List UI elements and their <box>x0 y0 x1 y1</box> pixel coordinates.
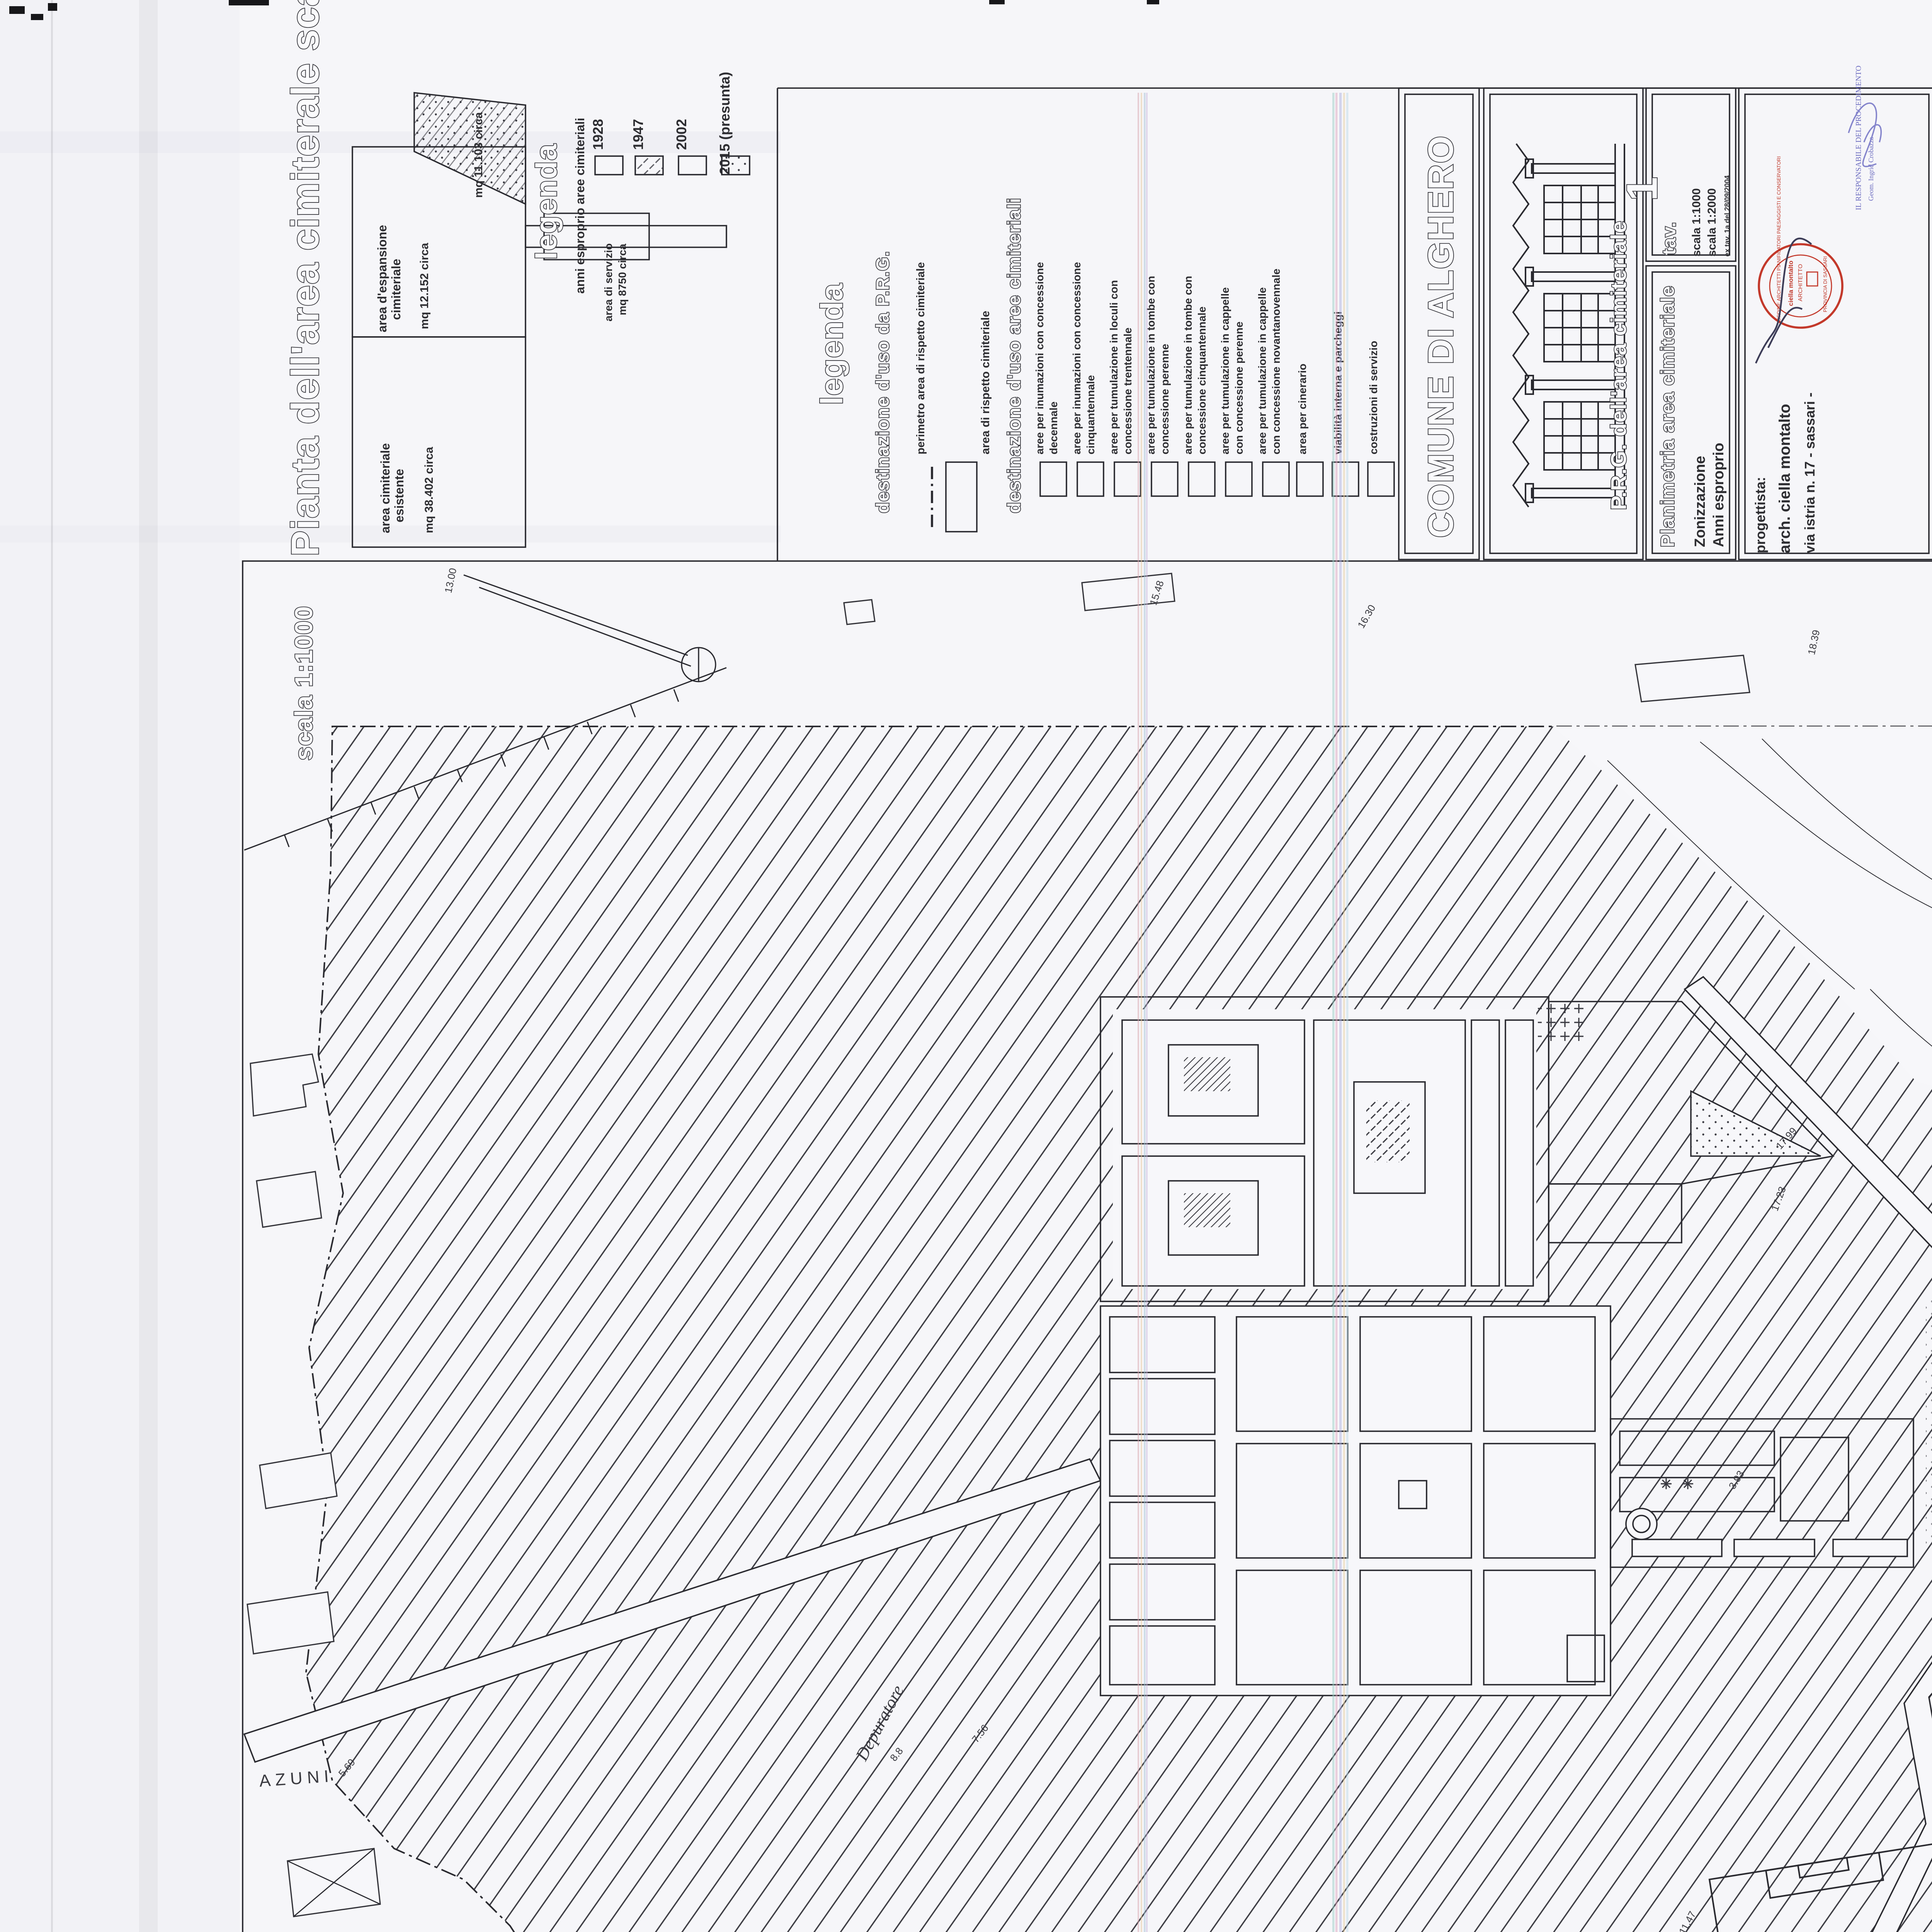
svg-text:1947: 1947 <box>630 119 646 150</box>
subject: Planimetria area cimiteriale <box>1658 285 1678 547</box>
seal-title: ARCHITETTO <box>1797 264 1804 301</box>
inset-espansione-mq: mq 12.152 circa <box>418 243 431 329</box>
legend-header-prg: destinazione d'uso da P.R.G. <box>872 250 893 513</box>
cinerario-area <box>1538 1002 1584 1042</box>
tav-label: tav. <box>1659 221 1680 255</box>
progettista-label: progettista: <box>1752 477 1768 553</box>
seal-ring-text: ORDINE ARCHITETTI PIANIFICATORI PAESAGGI… <box>1776 156 1782 321</box>
inset-espansione2-mq: mq 11.103 circa <box>472 112 485 198</box>
svg-text:costruzioni di servizio: costruzioni di servizio <box>1367 341 1379 454</box>
inset-servizio-mq: mq 8750 circa <box>616 243 628 315</box>
legend-years-subtitle: anni esproprio aree cimiteriali <box>573 118 587 294</box>
svg-text:concessione trentennale: concessione trentennale <box>1122 328 1134 454</box>
svg-text:decennale: decennale <box>1048 401 1060 454</box>
tav-note: ex tav. 1a del 28/09/2004 <box>1723 175 1731 257</box>
scanned-plan-sheet: Pianta dell'area cimiterale scala 1:2000… <box>0 0 1932 1932</box>
svg-text:1928: 1928 <box>590 119 606 150</box>
inset-espansione-label: area d'espansione <box>375 225 389 332</box>
tav-scale-1: scala 1:1000 <box>1690 188 1703 257</box>
map: scala 1:1000 SASSARI VIA VITTORIO EMANUE… <box>243 561 1932 1932</box>
svg-text:aree per inumazioni con conces: aree per inumazioni con concessione <box>1034 262 1046 454</box>
svg-text:area per cinerario: area per cinerario <box>1296 364 1308 454</box>
responsabile-line1: IL RESPONSABILE DEL PROCEDIMENTO <box>1854 66 1863 210</box>
sheet-title: Pianta dell'area cimiterale scala 1:2000 <box>284 0 327 556</box>
svg-text:concessione cinquantennale: concessione cinquantennale <box>1196 306 1208 454</box>
legend-years-title: legenda <box>530 143 563 260</box>
inset-esistente-label: area cimiteriale <box>378 443 392 533</box>
seal-ring-text2: PROVINCIA DI SASSARI <box>1822 256 1828 312</box>
svg-text:con concessione perenne: con concessione perenne <box>1233 321 1245 454</box>
tav-number: 1 <box>1618 176 1666 201</box>
svg-text:con concessione novantanovenna: con concessione novantanovennale <box>1270 269 1282 454</box>
legend-perimetro-label: perimetro area di rispetto cimiteriale <box>915 262 927 454</box>
svg-text:aree per tumulazione in loculi: aree per tumulazione in loculi con <box>1108 280 1120 454</box>
svg-text:aree per tumulazione in cappel: aree per tumulazione in cappelle <box>1219 287 1231 454</box>
progettista-address: via istria n. 17 - sassari - <box>1802 393 1818 553</box>
progettista-name: arch. ciella montalto <box>1776 404 1793 553</box>
inset-esistente-mq: mq 38.402 circa <box>423 447 435 533</box>
inset-servizio-label: area di servizio <box>602 243 614 321</box>
project-title: P.R.G. dell'area cimiteriale <box>1606 220 1631 510</box>
svg-text:cimiteriale: cimiteriale <box>389 259 403 320</box>
svg-text:2002: 2002 <box>673 119 689 150</box>
tav-scale-2: scala 1:2000 <box>1706 188 1718 257</box>
svg-text:esistente: esistente <box>392 469 406 522</box>
municipality: COMUNE DI ALGHERO <box>1421 135 1461 538</box>
svg-text:aree per inumazioni con conces: aree per inumazioni con concessione <box>1071 262 1083 454</box>
legend-rispetto-label: area di rispetto cimiteriale <box>979 311 992 454</box>
svg-text:concessione perenne: concessione perenne <box>1159 344 1171 454</box>
legend-header-cim: destinazione d'uso aree cimiteriali <box>1004 197 1024 513</box>
roundabout <box>1626 1509 1657 1539</box>
subject-line3: Anni esproprio <box>1711 443 1727 547</box>
map-scale-label: scala 1:1000 <box>290 605 318 760</box>
svg-text:cinquantennale: cinquantennale <box>1085 375 1097 454</box>
seal-name: ciella montalto <box>1787 261 1794 306</box>
tree-icon <box>1661 1478 1672 1489</box>
legend-title: legenda <box>815 283 849 405</box>
svg-text:aree per tumulazione in cappel: aree per tumulazione in cappelle <box>1256 287 1268 454</box>
cemetery-expansion <box>1100 1306 1611 1696</box>
svg-text:aree per tumulazione in tombe: aree per tumulazione in tombe con <box>1182 276 1194 454</box>
subject-line2: Zonizzazione <box>1692 456 1708 547</box>
tree-icon <box>1682 1478 1693 1489</box>
